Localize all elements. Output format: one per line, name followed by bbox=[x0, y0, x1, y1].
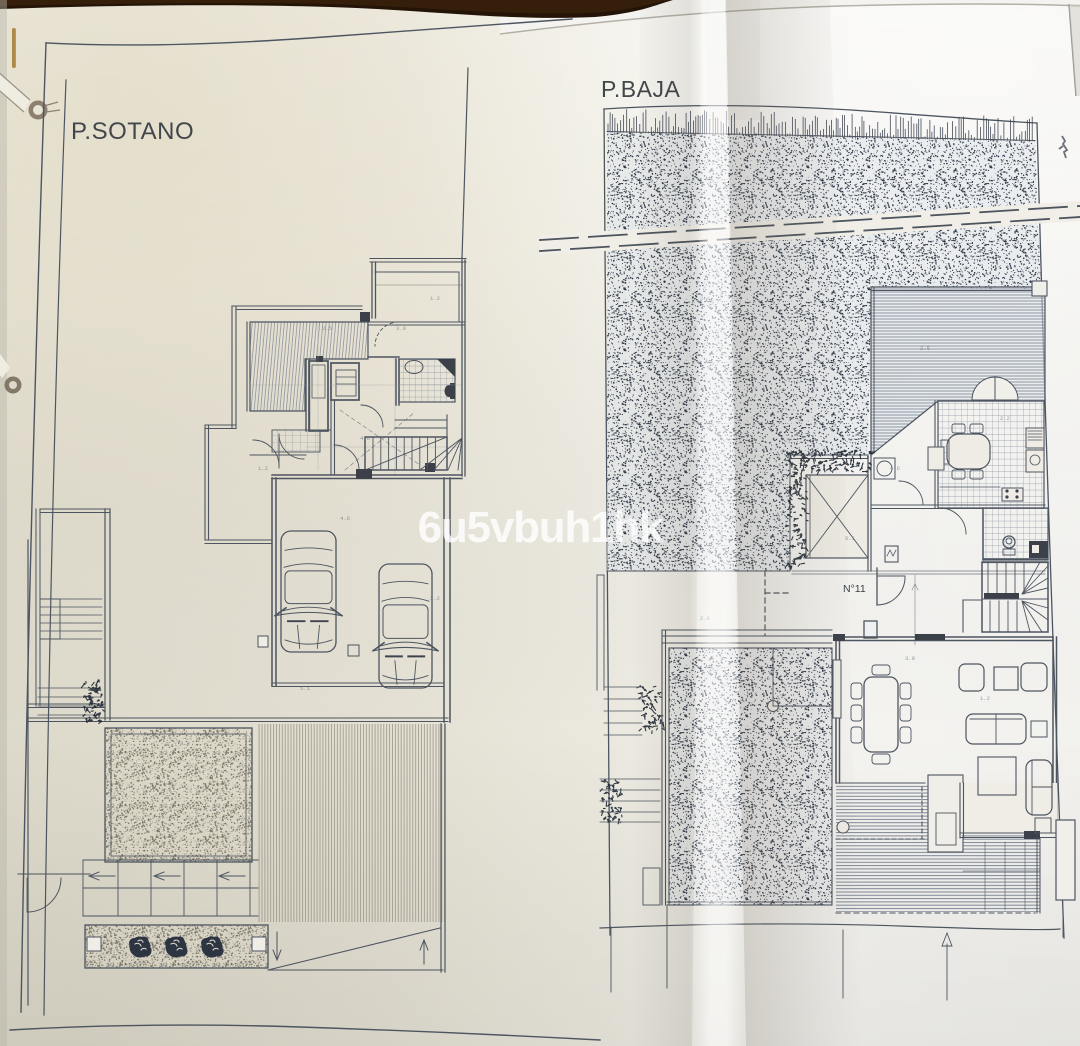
svg-text:4.6: 4.6 bbox=[360, 435, 370, 442]
svg-text:1.2: 1.2 bbox=[258, 465, 268, 472]
svg-text:3.4: 3.4 bbox=[180, 740, 191, 747]
svg-text:4.6: 4.6 bbox=[890, 465, 900, 472]
svg-text:1.2: 1.2 bbox=[430, 295, 440, 302]
svg-text:3.0: 3.0 bbox=[396, 325, 406, 332]
svg-text:5.1: 5.1 bbox=[845, 535, 856, 542]
svg-text:2.5: 2.5 bbox=[920, 345, 930, 352]
svg-text:1.2: 1.2 bbox=[980, 695, 990, 702]
svg-text:5.1: 5.1 bbox=[300, 685, 311, 692]
svg-text:P.SOTANO: P.SOTANO bbox=[71, 118, 194, 145]
svg-text:2.2: 2.2 bbox=[430, 595, 440, 602]
svg-text:6u5vbuh1hk: 6u5vbuh1hk bbox=[418, 503, 664, 552]
svg-text:3.0: 3.0 bbox=[905, 655, 915, 662]
svg-text:2.5: 2.5 bbox=[322, 325, 332, 332]
svg-text:2.2: 2.2 bbox=[1000, 415, 1010, 422]
svg-text:4.6: 4.6 bbox=[340, 515, 350, 522]
